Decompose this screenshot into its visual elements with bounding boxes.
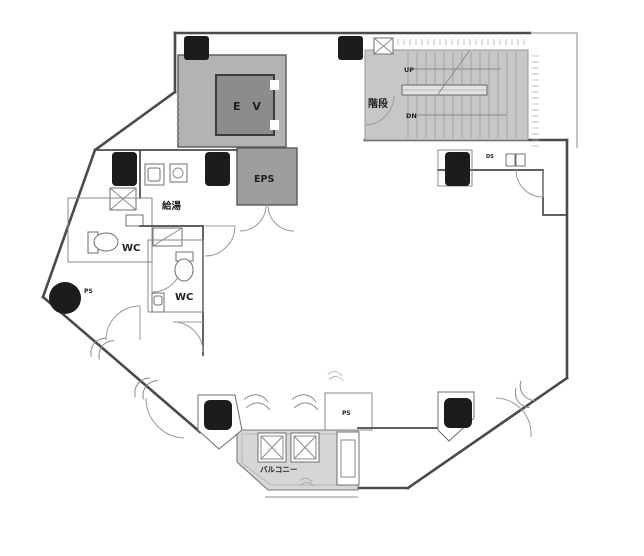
round-column — [49, 282, 81, 314]
column — [445, 152, 470, 186]
floor-plan-svg: UP DN 階段 E V EPS — [0, 0, 644, 556]
ps-round-shaft: PS — [49, 282, 93, 314]
balcony-tall-unit — [337, 432, 359, 485]
step-number-ticks-right — [532, 56, 539, 146]
vent-wave-icon — [291, 394, 319, 411]
balcony-ac-unit-2 — [291, 433, 319, 462]
northeast-thin-boundary — [530, 33, 577, 148]
kitchenette-counter — [170, 164, 187, 182]
northwest-diagonal-wall — [95, 92, 175, 150]
wc-left-toilet — [88, 232, 118, 253]
ev-label: E V — [233, 100, 265, 113]
entry-door-swing — [516, 170, 543, 197]
wc-left-cistern — [126, 215, 143, 226]
eps-double-door-swing — [240, 205, 294, 231]
ps-shaft-box — [110, 188, 136, 210]
stairs-top-shaft-box — [374, 38, 393, 54]
column — [205, 152, 230, 186]
stairs-room: UP DN 階段 — [365, 38, 539, 146]
wc-left-label: WC — [122, 243, 140, 254]
column — [184, 36, 209, 60]
sk-sink-box — [153, 228, 182, 246]
ps-circle-label: PS — [84, 288, 93, 295]
ds-label: DS — [486, 154, 494, 160]
wc-right-door-swing — [173, 322, 203, 352]
kitchenette-door-swing — [205, 226, 235, 256]
southeast-diagonal-wall — [408, 378, 567, 488]
kitchenette-label: 給湯 — [162, 200, 182, 212]
balcony-label: バルコニー — [260, 465, 297, 474]
kitchenette-sink — [145, 164, 164, 185]
ps-bottom-label: PS — [342, 410, 351, 417]
column — [444, 398, 472, 428]
wall-vent-boxes — [506, 154, 525, 166]
door-swing — [146, 398, 184, 438]
eps-label: EPS — [254, 174, 274, 185]
vent-wave-icon — [509, 381, 536, 411]
west-diagonal-wall — [43, 150, 95, 297]
door-swing — [496, 398, 531, 437]
column — [112, 152, 137, 186]
southwest-diagonal-wall — [43, 297, 200, 432]
up-label: UP — [404, 66, 414, 74]
elevator-door-post-bottom — [270, 120, 279, 130]
stairs-label: 階段 — [368, 97, 388, 110]
down-label: DN — [406, 112, 417, 120]
balcony-ac-unit-1 — [258, 433, 286, 462]
vent-wave-icon — [327, 371, 344, 381]
elevator-door-post-top — [270, 80, 279, 90]
wc-right-sink — [152, 293, 164, 312]
floor-plan: UP DN 階段 E V EPS — [0, 0, 644, 556]
eps-room: EPS — [237, 148, 297, 231]
wc-right-label: WC — [175, 292, 193, 303]
column — [338, 36, 363, 60]
corridor-door-swing — [106, 306, 140, 340]
vent-wave-icon — [243, 394, 271, 411]
wc-right-toilet — [175, 252, 193, 281]
elevator-block: E V — [176, 55, 286, 147]
bottom-service: PS バルコニー — [237, 393, 438, 490]
step-number-ticks-top — [398, 39, 524, 45]
column — [204, 400, 232, 430]
vestibule-side-wall — [543, 170, 567, 215]
